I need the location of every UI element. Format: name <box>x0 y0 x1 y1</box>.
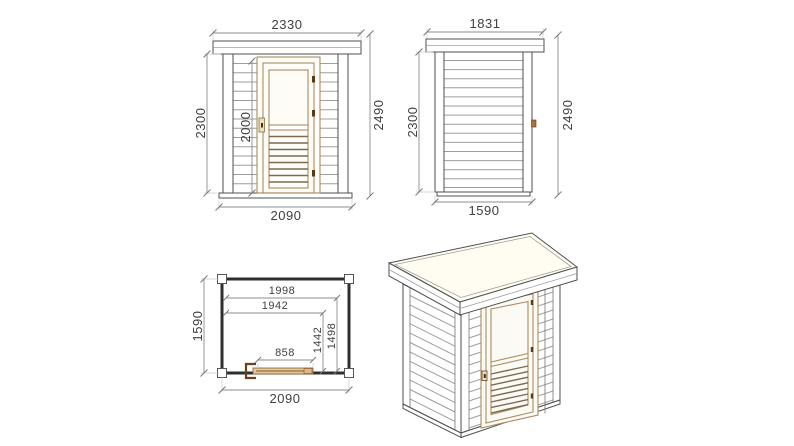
front-corner-trim-left <box>223 54 233 193</box>
hinge-icon <box>531 394 533 399</box>
dim-plan-outer-depth: 1590 <box>190 311 205 342</box>
side-wall-body <box>435 52 532 192</box>
dim-plan-inner-width-full: 1998 <box>269 285 295 297</box>
floor-plan-view: 1998 1942 1442 1498 858 1590 2090 <box>185 250 400 446</box>
dim-side-wall-height: 2300 <box>405 107 420 138</box>
hinge-icon <box>312 110 315 117</box>
front-elevation-view: 2330 2300 2000 2490 2090 <box>190 10 390 225</box>
perspective-door-handle <box>482 371 487 381</box>
hinge-icon <box>531 300 533 305</box>
front-door-mid-rail <box>269 125 308 130</box>
hinge-icon <box>312 170 315 177</box>
hinge-icon <box>312 76 315 83</box>
side-roof <box>426 39 544 52</box>
dim-front-door-height: 2000 <box>238 112 253 143</box>
front-roof <box>213 41 361 54</box>
technical-drawing-canvas: 2330 2300 2000 2490 2090 1831 <box>0 0 794 446</box>
side-corner-trim-left <box>435 52 444 192</box>
perspective-view <box>380 225 602 446</box>
dim-side-wall-depth: 1590 <box>469 203 500 218</box>
front-corner-trim-right <box>338 54 348 193</box>
dim-front-wall-width: 2090 <box>271 208 302 223</box>
front-door <box>257 57 320 193</box>
dim-plan-inner-depth-full: 1498 <box>326 323 338 349</box>
side-elevation-view: 1831 2300 2490 1590 <box>400 10 600 225</box>
front-base-board <box>219 193 352 198</box>
dim-plan-door-opening: 858 <box>275 347 295 359</box>
side-wall <box>435 52 536 196</box>
dim-plan-inner-depth-partial: 1442 <box>312 327 324 353</box>
hinge-icon <box>531 347 533 352</box>
side-base-board <box>437 192 530 196</box>
front-door-handle <box>259 118 265 132</box>
dim-front-wall-height: 2300 <box>193 108 208 139</box>
perspective-door-casing <box>481 291 538 428</box>
dim-side-roof-depth: 1831 <box>470 16 501 31</box>
dim-front-total-height: 2490 <box>371 100 386 131</box>
dim-front-roof-width: 2330 <box>272 17 303 32</box>
dim-plan-inner-width-partial: 1942 <box>262 300 288 312</box>
dim-side-total-height: 2490 <box>560 100 575 131</box>
side-door-handle-mark <box>532 120 537 127</box>
perspective-door <box>481 289 545 429</box>
dim-plan-outer-width: 2090 <box>270 391 301 406</box>
side-corner-trim-right <box>523 52 532 192</box>
